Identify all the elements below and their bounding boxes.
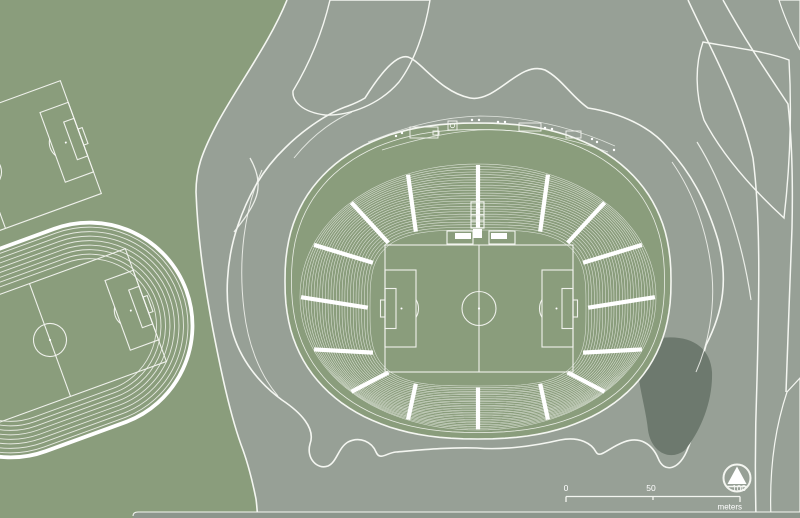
- site-plan: 0 50 100 meters: [0, 0, 800, 518]
- scale-tick-0: 0: [564, 483, 569, 493]
- bottom-road: [133, 512, 800, 518]
- scale-unit-label: meters: [718, 503, 742, 512]
- scale-tick-50: 50: [646, 483, 656, 493]
- site-plan-map: 0 50 100 meters: [0, 0, 800, 518]
- stadium-bowl: [285, 116, 671, 439]
